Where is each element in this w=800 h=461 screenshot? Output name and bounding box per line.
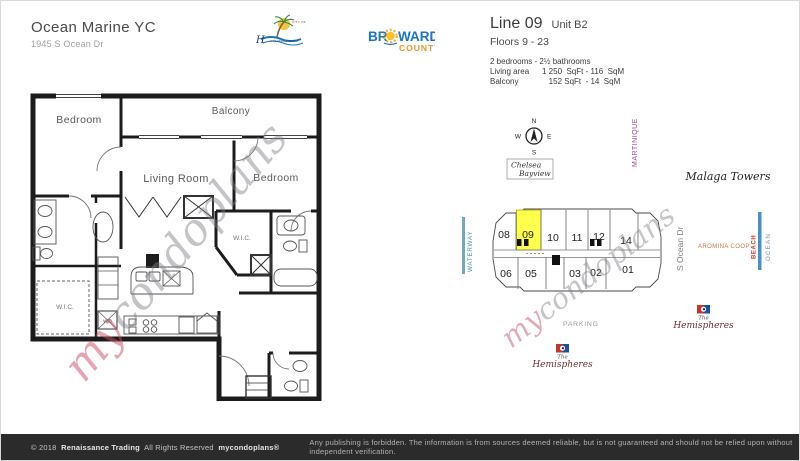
hemispheres-logo: The Hemispheres: [672, 305, 734, 331]
martinique-label: MARTINIQUE: [632, 118, 639, 167]
line-number: Line 09: [490, 15, 543, 33]
parking-label: PARKING: [563, 321, 599, 328]
unit-06: 06: [500, 268, 512, 280]
footer-brand: mycondoplans®: [218, 443, 279, 452]
unit-05: 05: [525, 268, 537, 280]
living-area-value: 1 250 SqFt - 116 SqM: [542, 67, 624, 77]
unit-08: 08: [498, 229, 510, 241]
broward-county-logo: BR WARD COUNTY: [367, 26, 435, 54]
waterway-line: [462, 217, 465, 274]
floor-plan: Bedroom Balcony Living Room Bedroom W.I.…: [29, 89, 331, 401]
malaga-towers-label: Malaga Towers: [685, 170, 771, 183]
footer-copyright: © 2018 Renaissance Trading All Rights Re…: [31, 443, 279, 452]
broward-br: BR: [368, 29, 388, 44]
hemispheres-name-2: Hemispheres: [531, 360, 593, 370]
building-title: Ocean Marine YC: [31, 19, 156, 36]
wic1-label: W.I.C.: [56, 304, 74, 311]
hemispheres-name: Hemispheres: [672, 321, 734, 331]
site-plan: N S W E Chelsea Bayview MARTINIQUE Malag…: [441, 101, 800, 401]
hemispheres-logo-2: The Hemispheres: [531, 344, 593, 370]
footer-rights: All Rights Reserved: [144, 443, 214, 452]
s-ocean-dr-label: S Ocean Dr: [675, 226, 685, 271]
chelsea-bayview-box: Chelsea Bayview: [507, 159, 553, 179]
compass-s: S: [532, 150, 537, 157]
living-area-label: Living area: [490, 67, 542, 77]
compass-e: E: [547, 134, 552, 141]
unit-10: 10: [547, 232, 559, 244]
hallandale-beach-logo: CITY OF H HALLANDALE BEACH: [253, 14, 309, 50]
balcony-room-label: Balcony: [212, 106, 250, 117]
aromina-coop-label: AROMINA COOP: [698, 244, 750, 250]
unit-09: 09: [522, 229, 534, 241]
ocean-label: OCEAN: [765, 233, 772, 261]
bed-bath-count: 2 bedrooms - 2½ bathrooms: [490, 57, 624, 67]
footer-year: © 2018: [31, 443, 57, 452]
waterway-label: WATERWAY: [467, 231, 474, 272]
unit-11: 11: [572, 232, 583, 244]
footer-bar: © 2018 Renaissance Trading All Rights Re…: [1, 434, 800, 460]
wic2-label: W.I.C.: [233, 235, 251, 242]
compass-icon: N S W E: [515, 118, 552, 157]
condo-plan-page: Ocean Marine YC 1945 S Ocean Dr CITY OF …: [0, 0, 800, 461]
broward-ward: WARD: [398, 29, 435, 44]
building-address: 1945 S Ocean Dr: [31, 39, 104, 49]
floors-range: Floors 9 - 23: [490, 36, 624, 48]
hallandale-h-letter: H: [255, 35, 265, 46]
balcony-value: 152 SqFt - 14 SqM: [542, 77, 620, 87]
balcony-label: Balcony: [490, 77, 542, 87]
beach-line: [758, 212, 762, 270]
compass-n: N: [532, 118, 537, 125]
broward-county: COUNTY: [399, 43, 435, 53]
unit-number: Unit B2: [552, 19, 588, 31]
unit-info: Line 09 Unit B2 Floors 9 - 23 2 bedrooms…: [490, 15, 624, 87]
footer-company: Renaissance Trading: [61, 443, 140, 452]
unit-12: 12: [593, 231, 605, 243]
bayview-label: Bayview: [518, 169, 551, 178]
compass-w: W: [515, 134, 522, 141]
bedroom1-label: Bedroom: [56, 114, 101, 126]
hallandale-name: HALLANDALE BEACH: [270, 39, 298, 43]
footer-disclaimer: Any publishing is forbidden. The informa…: [309, 438, 800, 456]
city-of-text: CITY OF: [292, 20, 306, 24]
beach-label: BEACH: [752, 235, 758, 259]
unit-details: 2 bedrooms - 2½ bathrooms Living area 1 …: [490, 57, 624, 87]
living-room-label: Living Room: [143, 173, 209, 185]
